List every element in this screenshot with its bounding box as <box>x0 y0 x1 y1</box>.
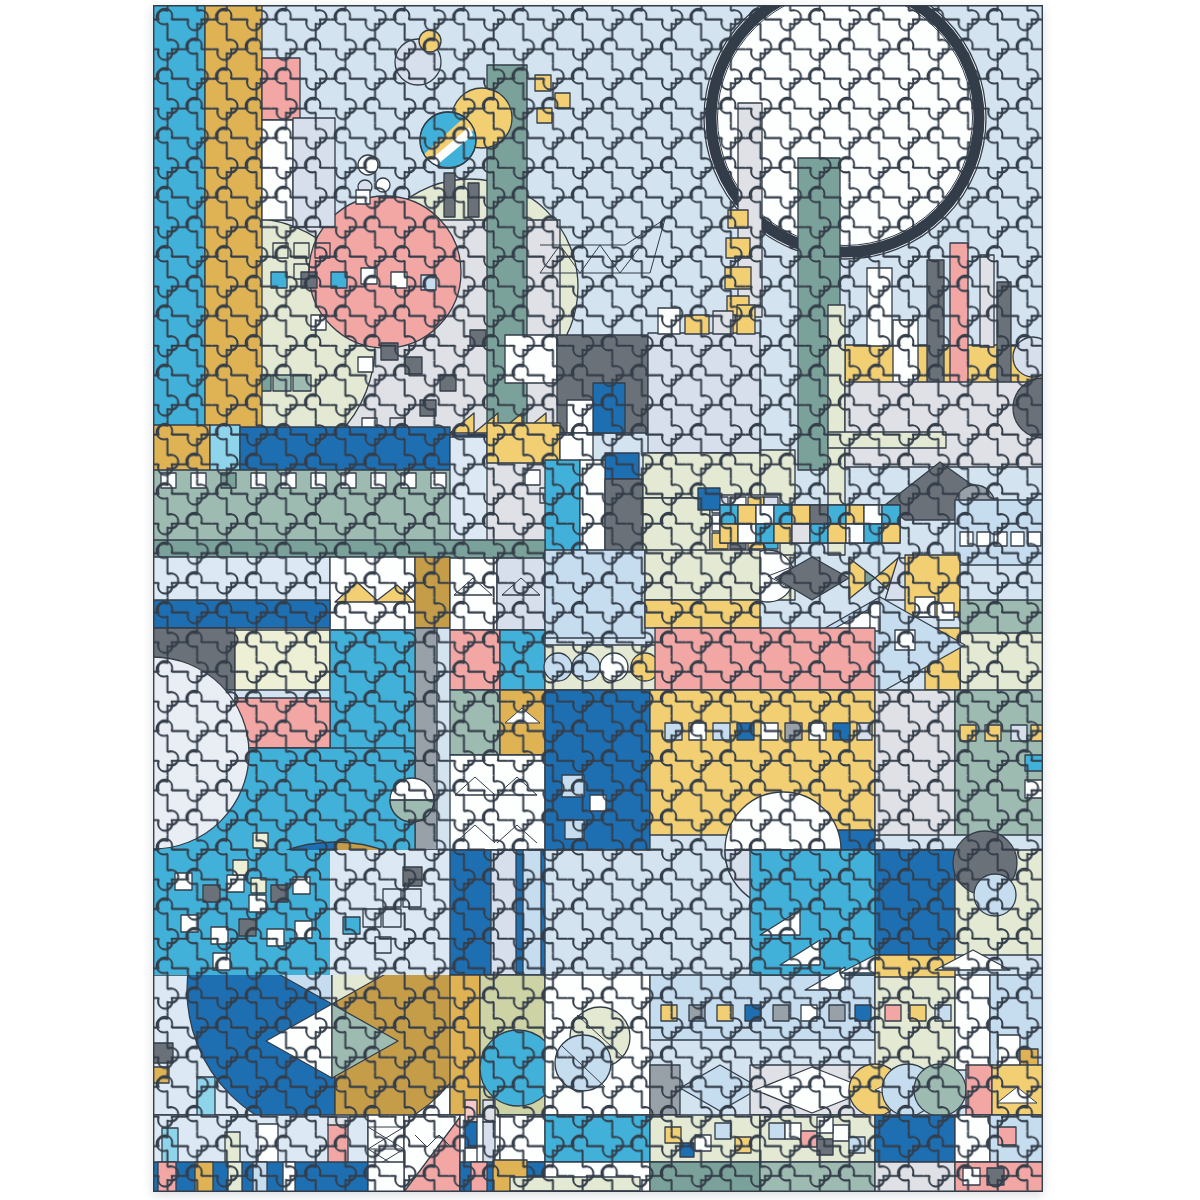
puzzle-cut-texture <box>153 5 1043 1192</box>
puzzle-artwork <box>153 5 1043 1192</box>
product-photo-stage: A fully assembled rectangular jigsaw puz… <box>0 0 1200 1200</box>
jigsaw-puzzle-photo <box>153 5 1043 1192</box>
photo-caption: A fully assembled rectangular jigsaw puz… <box>0 16 1 17</box>
